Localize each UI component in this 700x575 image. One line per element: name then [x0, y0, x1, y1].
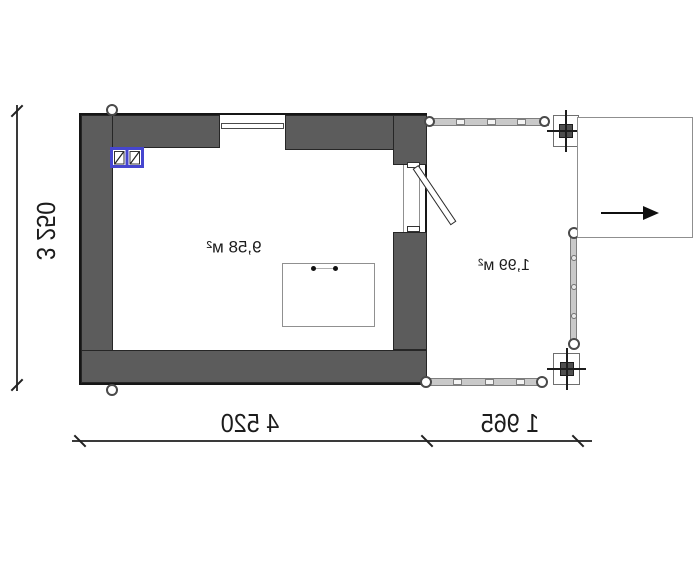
door-frame-notch: [407, 226, 420, 232]
railing-post: [571, 255, 577, 261]
arrow-right-head: [643, 206, 659, 220]
wall-corner-chunk: [393, 115, 427, 165]
railing-post: [456, 119, 465, 125]
wall-bottom: [81, 350, 427, 383]
window-icon: [221, 123, 284, 129]
blue-window-symbol-icon: [110, 147, 144, 168]
railing-post: [516, 379, 525, 385]
room-area-label: 9,58 м²: [206, 239, 261, 256]
table-handle-dot: [311, 266, 316, 271]
column-cross-v: [565, 110, 567, 152]
door-jamb-line: [403, 165, 404, 232]
dimension-label-height: 3 250: [33, 202, 59, 261]
dimension-label-building-width: 4 520: [221, 410, 280, 436]
railing-end-circle: [420, 376, 432, 388]
railing-end-circle: [536, 376, 548, 388]
dimension-line-vertical: [16, 105, 18, 391]
wall-right-lower: [393, 232, 427, 350]
railing-end-circle: [568, 338, 580, 350]
railing-end-circle: [424, 116, 435, 127]
column-cross-v: [566, 348, 568, 390]
railing-post: [517, 119, 526, 125]
railing-post: [487, 119, 496, 125]
post-circle: [106, 384, 118, 396]
railing-post: [571, 313, 577, 319]
railing-post: [453, 379, 462, 385]
floor-plan-canvas: 3 250 4 520 1 965: [0, 0, 700, 575]
railing-post: [571, 284, 577, 290]
entrance-landing: [577, 117, 693, 238]
dimension-line-horizontal: [72, 440, 592, 442]
table-handle-dot: [333, 266, 338, 271]
wall-left: [81, 115, 113, 383]
railing-post: [485, 379, 494, 385]
railing-end-circle: [539, 116, 550, 127]
table: [282, 263, 375, 327]
dimension-label-porch-width: 1 965: [481, 410, 540, 436]
porch-area-label: 1,99 м²: [478, 258, 530, 274]
arrow-right-icon: [601, 212, 645, 214]
post-circle: [106, 104, 118, 116]
